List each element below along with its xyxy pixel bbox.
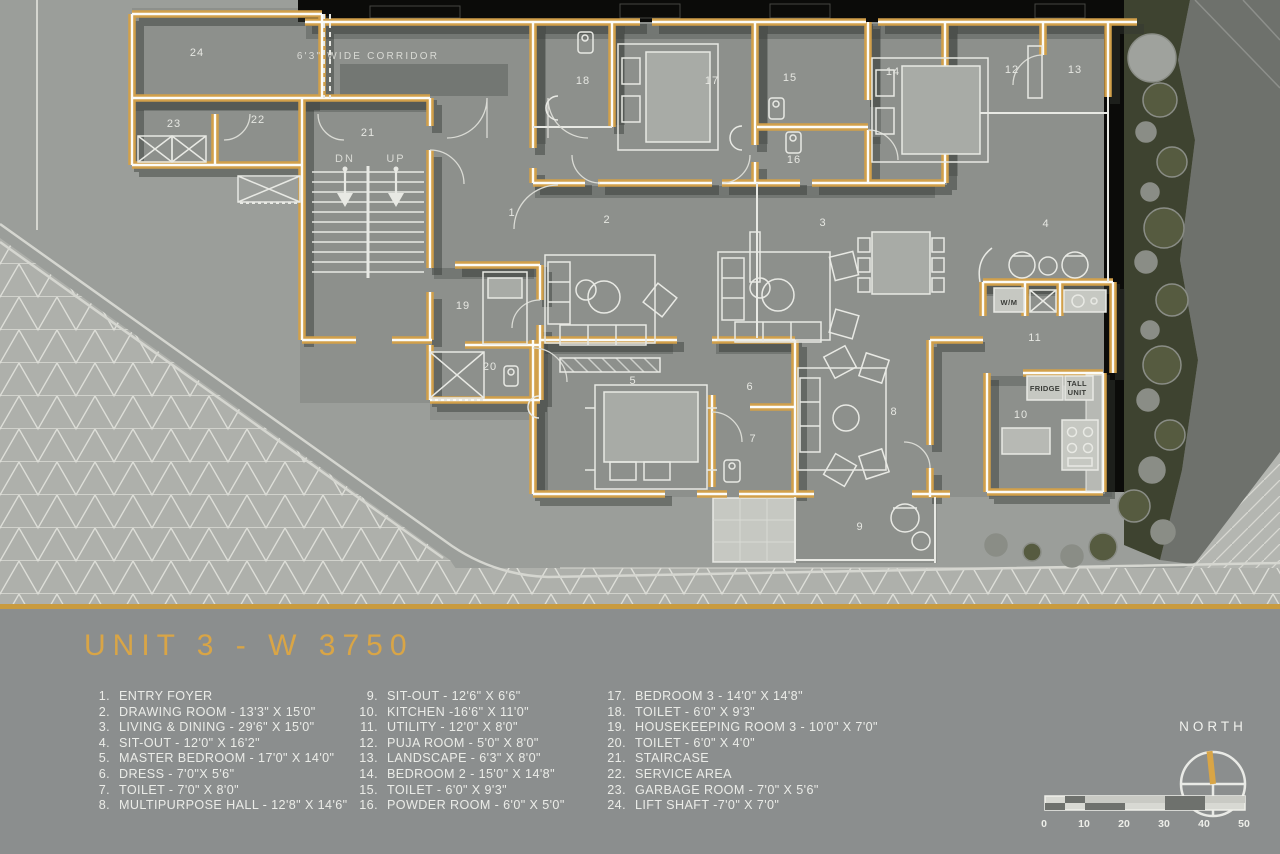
legend-item-label: BEDROOM 3 - 14'0" X 14'8" (635, 689, 803, 705)
floorplan-sheet: 123456789101112131415161718192021222324 … (0, 0, 1280, 854)
room-number: 11 (1028, 332, 1041, 344)
legend-item: 18.TOILET - 6'0" X 9'3" (600, 705, 878, 721)
room-number: 17 (705, 75, 719, 87)
legend-item-number: 9. (352, 689, 378, 705)
legend-item-label: TOILET - 6'0" X 9'3" (387, 783, 507, 799)
room-number: 19 (456, 300, 470, 312)
legend-item-number: 10. (352, 705, 378, 721)
page-title: UNIT 3 - W 3750 (84, 629, 414, 663)
legend-item-number: 2. (84, 705, 110, 721)
room-number: 7 (749, 433, 756, 445)
legend-item-label: SIT-OUT - 12'6" X 6'6" (387, 689, 521, 705)
legend-item: 22.SERVICE AREA (600, 767, 878, 783)
plan-label: UNIT (1068, 388, 1087, 397)
scale-tick: 30 (1158, 818, 1170, 830)
legend-item-number: 24. (600, 798, 626, 814)
room-number: 12 (1005, 64, 1019, 76)
legend-item-number: 13. (352, 751, 378, 767)
plan-label: UP (386, 153, 405, 165)
legend-item: 9.SIT-OUT - 12'6" X 6'6" (352, 689, 565, 705)
legend-item-label: TOILET - 7'0" X 8'0" (119, 783, 239, 799)
room-number: 16 (787, 154, 801, 166)
legend-item-number: 15. (352, 783, 378, 799)
legend-item-label: STAIRCASE (635, 751, 709, 767)
plan-label: W/M (1001, 298, 1018, 307)
legend-item-number: 23. (600, 783, 626, 799)
room-number: 23 (167, 118, 181, 130)
room-number: 5 (629, 375, 636, 387)
legend-item-label: GARBAGE ROOM - 7'0" X 5'6" (635, 783, 819, 799)
scale-bar-graphic (1044, 795, 1246, 811)
plan-label: FRIDGE (1030, 384, 1060, 393)
room-number: 10 (1014, 409, 1028, 421)
legend-item-label: TOILET - 6'0" X 9'3" (635, 705, 755, 721)
scale-tick: 40 (1198, 818, 1210, 830)
legend-item-number: 8. (84, 798, 110, 814)
room-number: 1 (508, 207, 515, 219)
room-number: 2 (603, 214, 610, 226)
legend-item-number: 14. (352, 767, 378, 783)
room-number: 13 (1068, 64, 1082, 76)
room-number: 22 (251, 114, 265, 126)
room-number: 4 (1042, 218, 1049, 230)
legend-item-label: LANDSCAPE - 6'3" X 8'0" (387, 751, 541, 767)
legend-item-label: MASTER BEDROOM - 17'0" X 14'0" (119, 751, 334, 767)
scale-tick: 50 (1238, 818, 1250, 830)
scale-tick: 10 (1078, 818, 1090, 830)
north-label: NORTH (1158, 719, 1268, 734)
legend-item: 11.UTILITY - 12'0" X 8'0" (352, 720, 565, 736)
legend-column-3: 17.BEDROOM 3 - 14'0" X 14'8"18.TOILET - … (600, 689, 878, 814)
legend-item: 3.LIVING & DINING - 29'6" X 15'0" (84, 720, 348, 736)
room-number: 6 (746, 381, 753, 393)
legend-item-label: LIVING & DINING - 29'6" X 15'0" (119, 720, 315, 736)
room-number: 8 (890, 406, 897, 418)
legend-item-label: DRAWING ROOM - 13'3" X 15'0" (119, 705, 316, 721)
scale-bar: 01020304050 (1044, 795, 1246, 830)
legend-item-label: SERVICE AREA (635, 767, 732, 783)
legend-item-label: BEDROOM 2 - 15'0" X 14'8" (387, 767, 555, 783)
staircase (312, 166, 424, 278)
legend-item-number: 1. (84, 689, 110, 705)
legend-panel: UNIT 3 - W 3750 1.ENTRY FOYER2.DRAWING R… (0, 609, 1280, 854)
scale-tick-labels: 01020304050 (1044, 816, 1244, 830)
legend-item-label: POWDER ROOM - 6'0" X 5'0" (387, 798, 565, 814)
legend-item: 7.TOILET - 7'0" X 8'0" (84, 783, 348, 799)
scale-tick: 20 (1118, 818, 1130, 830)
legend-item: 15.TOILET - 6'0" X 9'3" (352, 783, 565, 799)
site-plan-drawing: 123456789101112131415161718192021222324 … (0, 0, 1280, 604)
legend-item-number: 11. (352, 720, 378, 736)
legend-item-number: 21. (600, 751, 626, 767)
legend-item: 4.SIT-OUT - 12'0" X 16'2" (84, 736, 348, 752)
legend-item: 5.MASTER BEDROOM - 17'0" X 14'0" (84, 751, 348, 767)
legend-item: 19.HOUSEKEEPING ROOM 3 - 10'0" X 7'0" (600, 720, 878, 736)
legend-item: 20.TOILET - 6'0" X 4'0" (600, 736, 878, 752)
legend-item-number: 5. (84, 751, 110, 767)
legend-item: 24.LIFT SHAFT -7'0" X 7'0" (600, 798, 878, 814)
legend-item-number: 6. (84, 767, 110, 783)
legend-item: 17.BEDROOM 3 - 14'0" X 14'8" (600, 689, 878, 705)
plan-label: 6'3" WIDE CORRIDOR (297, 51, 439, 62)
legend-item-number: 4. (84, 736, 110, 752)
legend-column-2: 9.SIT-OUT - 12'6" X 6'6"10.KITCHEN -16'6… (352, 689, 565, 814)
room-number: 21 (361, 127, 375, 139)
plan-label: DN (335, 153, 355, 165)
room-number: 18 (576, 75, 590, 87)
legend-item: 14.BEDROOM 2 - 15'0" X 14'8" (352, 767, 565, 783)
legend-item-label: HOUSEKEEPING ROOM 3 - 10'0" X 7'0" (635, 720, 878, 736)
legend-item-label: SIT-OUT - 12'0" X 16'2" (119, 736, 260, 752)
legend-item-label: ENTRY FOYER (119, 689, 213, 705)
legend-item-label: UTILITY - 12'0" X 8'0" (387, 720, 518, 736)
legend-item-label: TOILET - 6'0" X 4'0" (635, 736, 755, 752)
legend-item-label: LIFT SHAFT -7'0" X 7'0" (635, 798, 779, 814)
legend-item: 6.DRESS - 7'0"X 5'6" (84, 767, 348, 783)
legend-item: 13.LANDSCAPE - 6'3" X 8'0" (352, 751, 565, 767)
legend-item-label: KITCHEN -16'6" X 11'0" (387, 705, 529, 721)
legend-column-1: 1.ENTRY FOYER2.DRAWING ROOM - 13'3" X 15… (84, 689, 348, 814)
legend-item-number: 17. (600, 689, 626, 705)
scale-tick: 0 (1041, 818, 1047, 830)
room-number: 24 (190, 47, 204, 59)
legend-item-label: PUJA ROOM - 5'0" X 8'0" (387, 736, 539, 752)
legend-item-number: 16. (352, 798, 378, 814)
legend-item: 16.POWDER ROOM - 6'0" X 5'0" (352, 798, 565, 814)
legend-item: 12.PUJA ROOM - 5'0" X 8'0" (352, 736, 565, 752)
room-number: 15 (783, 72, 797, 84)
legend-item-number: 3. (84, 720, 110, 736)
legend-item-number: 12. (352, 736, 378, 752)
legend-item-number: 22. (600, 767, 626, 783)
legend-item: 2.DRAWING ROOM - 13'3" X 15'0" (84, 705, 348, 721)
plan-label: TALL (1067, 379, 1087, 388)
legend-item: 10.KITCHEN -16'6" X 11'0" (352, 705, 565, 721)
legend-item-label: DRESS - 7'0"X 5'6" (119, 767, 234, 783)
legend-item-number: 7. (84, 783, 110, 799)
legend-item-label: MULTIPURPOSE HALL - 12'8" X 14'6" (119, 798, 348, 814)
legend-item: 23.GARBAGE ROOM - 7'0" X 5'6" (600, 783, 878, 799)
room-number: 20 (483, 361, 497, 373)
sink-counter (1064, 290, 1106, 312)
room-number: 9 (856, 521, 863, 533)
legend-item-number: 20. (600, 736, 626, 752)
legend-item: 8.MULTIPURPOSE HALL - 12'8" X 14'6" (84, 798, 348, 814)
room-number: 14 (886, 66, 900, 78)
legend-item: 21.STAIRCASE (600, 751, 878, 767)
entry-porch (713, 498, 795, 562)
legend-item: 1.ENTRY FOYER (84, 689, 348, 705)
legend-item-number: 19. (600, 720, 626, 736)
legend-item-number: 18. (600, 705, 626, 721)
room-number: 3 (819, 217, 826, 229)
